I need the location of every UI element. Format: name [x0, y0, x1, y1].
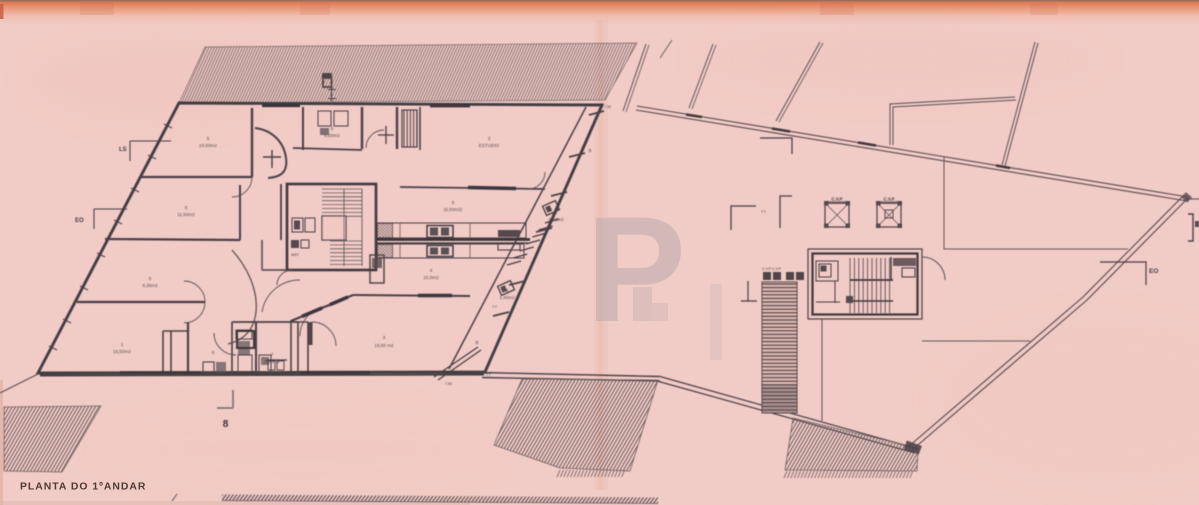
svg-text:C.V.P: C.V.P: [831, 197, 842, 202]
svg-text:C.V.P C.V.P: C.V.P C.V.P: [762, 267, 782, 271]
svg-text:B: B: [588, 148, 591, 153]
svg-text:19,50 m2: 19,50 m2: [374, 343, 394, 348]
svg-text:T.T: T.T: [492, 305, 498, 309]
svg-text:EO: EO: [1149, 268, 1158, 275]
svg-text:ESTUDIO: ESTUDIO: [479, 143, 500, 148]
svg-text:2,00m2: 2,00m2: [264, 359, 280, 364]
svg-text:6: 6: [555, 210, 558, 215]
svg-text:EO: EO: [75, 218, 84, 224]
svg-text:1,80m2: 1,80m2: [548, 217, 564, 222]
svg-text:16,50m2: 16,50m2: [113, 349, 131, 354]
svg-text:8: 8: [223, 419, 229, 430]
svg-text:10,0m2: 10,0m2: [423, 275, 439, 280]
svg-text:5: 5: [331, 126, 334, 131]
svg-text:C.V.P: C.V.P: [883, 197, 894, 202]
svg-text:9: 9: [506, 288, 509, 293]
svg-text:4: 4: [430, 268, 433, 273]
svg-text:7.50: 7.50: [445, 382, 452, 386]
svg-text:1: 1: [121, 342, 124, 347]
svg-text:PLANTA DO 1ºANDAR: PLANTA DO 1ºANDAR: [20, 482, 146, 493]
svg-text:11,50m2: 11,50m2: [177, 212, 195, 217]
svg-text:T.T: T.T: [486, 373, 492, 377]
svg-text:10,50m2: 10,50m2: [199, 143, 217, 148]
svg-text:LS: LS: [119, 147, 127, 153]
svg-text:1,40m2: 1,40m2: [499, 295, 515, 300]
svg-text:P: P: [586, 185, 686, 353]
svg-text:6: 6: [212, 350, 215, 355]
svg-text:5: 5: [149, 276, 152, 281]
svg-text:ART: ART: [291, 252, 299, 257]
svg-text:7.50: 7.50: [604, 105, 611, 109]
svg-text:3: 3: [488, 136, 491, 141]
svg-text:6: 6: [452, 200, 455, 205]
svg-text:5: 5: [207, 136, 210, 141]
svg-text:5: 5: [185, 205, 188, 210]
svg-text:7: 7: [271, 352, 274, 357]
svg-text:(6,00m2): (6,00m2): [444, 207, 463, 212]
svg-text:B: B: [475, 340, 478, 345]
svg-text:3: 3: [383, 335, 386, 340]
svg-text:9,35m2: 9,35m2: [142, 283, 158, 288]
svg-text:T.T: T.T: [761, 210, 767, 214]
svg-text:5,50m2: 5,50m2: [324, 133, 340, 138]
